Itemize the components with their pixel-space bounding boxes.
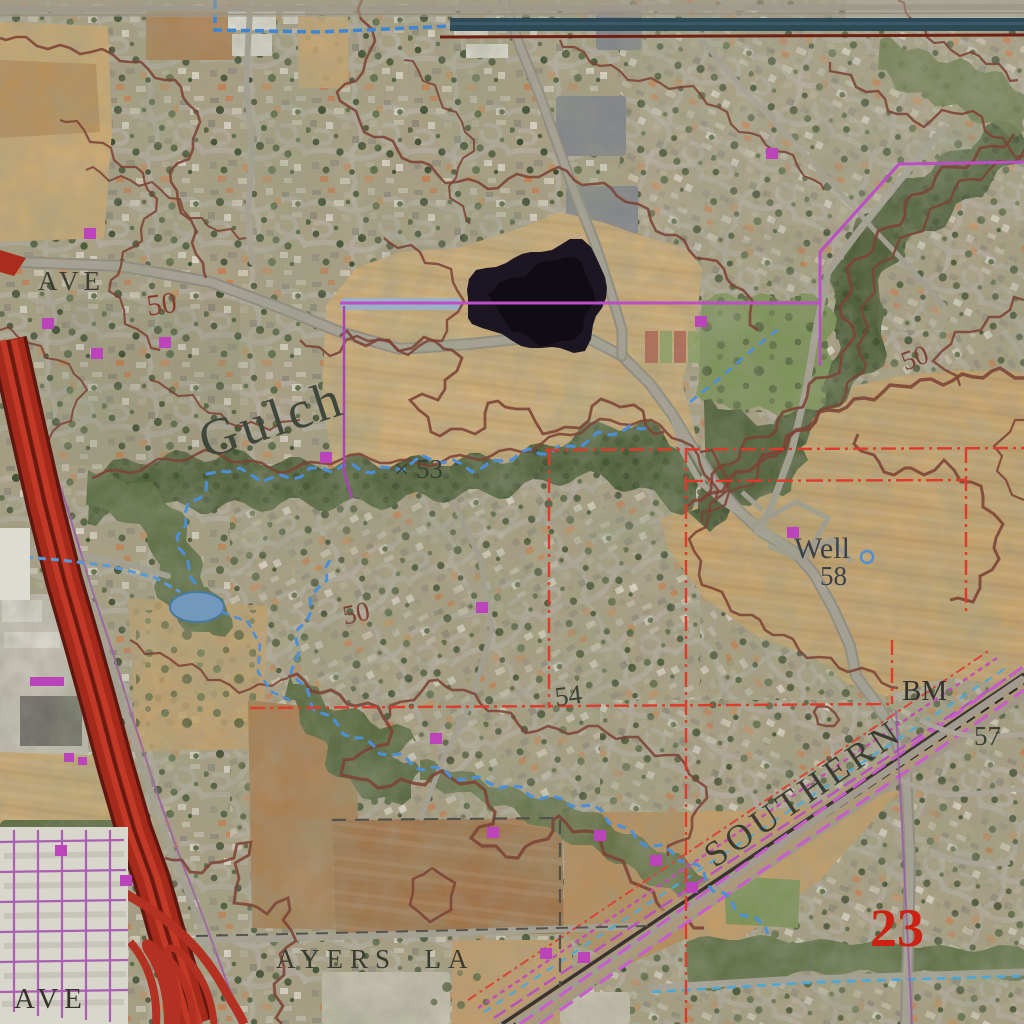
svg-text:23: 23: [870, 898, 924, 958]
svg-text:50: 50: [144, 286, 178, 323]
svg-text:58: 58: [820, 561, 847, 591]
svg-text:54: 54: [553, 679, 584, 712]
svg-text:AVE: AVE: [14, 983, 88, 1015]
svg-text:BM: BM: [902, 675, 947, 707]
svg-text:AYERS LA: AYERS LA: [276, 944, 475, 974]
svg-text:57: 57: [974, 721, 1001, 751]
svg-text:AVE: AVE: [38, 266, 105, 296]
svg-text:× 53: × 53: [394, 454, 443, 484]
